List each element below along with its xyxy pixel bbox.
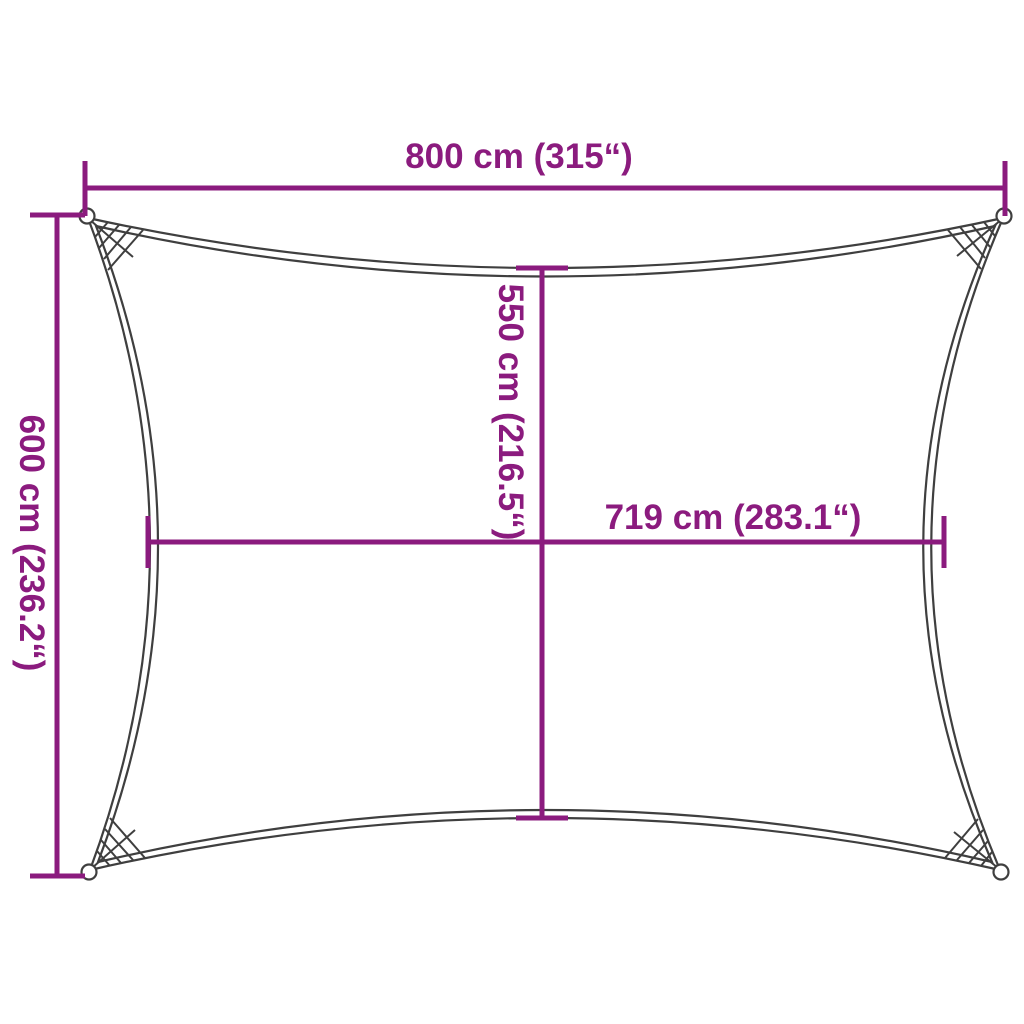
dimension-label-center-height: 550 cm (216.5“) <box>490 284 530 541</box>
dimension-diagram: 800 cm (315“) 600 cm (236.2“) 550 cm (21… <box>0 0 1024 1024</box>
dimension-label-left-height: 600 cm (236.2“) <box>11 415 51 672</box>
corner-ring-bottom-right <box>994 865 1009 880</box>
dimension-label-center-width: 719 cm (283.1“) <box>605 498 862 538</box>
dimension-label-top-width: 800 cm (315“) <box>405 137 633 177</box>
